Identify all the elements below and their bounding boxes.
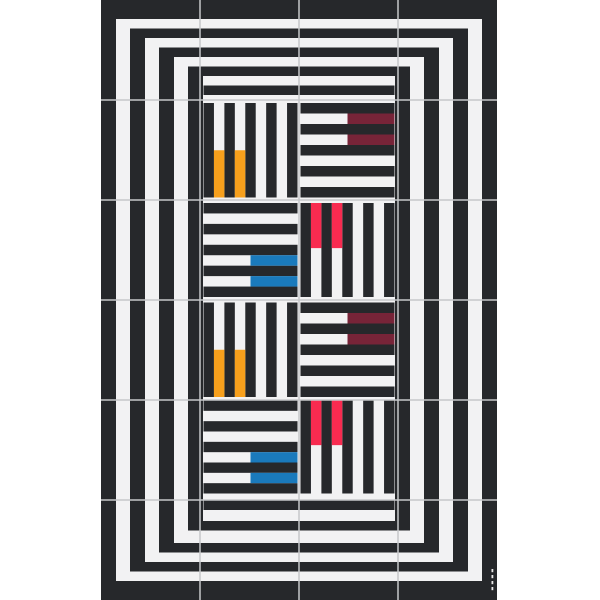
page-background	[0, 0, 600, 600]
rug-svg	[101, 0, 497, 600]
rug-artwork	[101, 0, 497, 600]
